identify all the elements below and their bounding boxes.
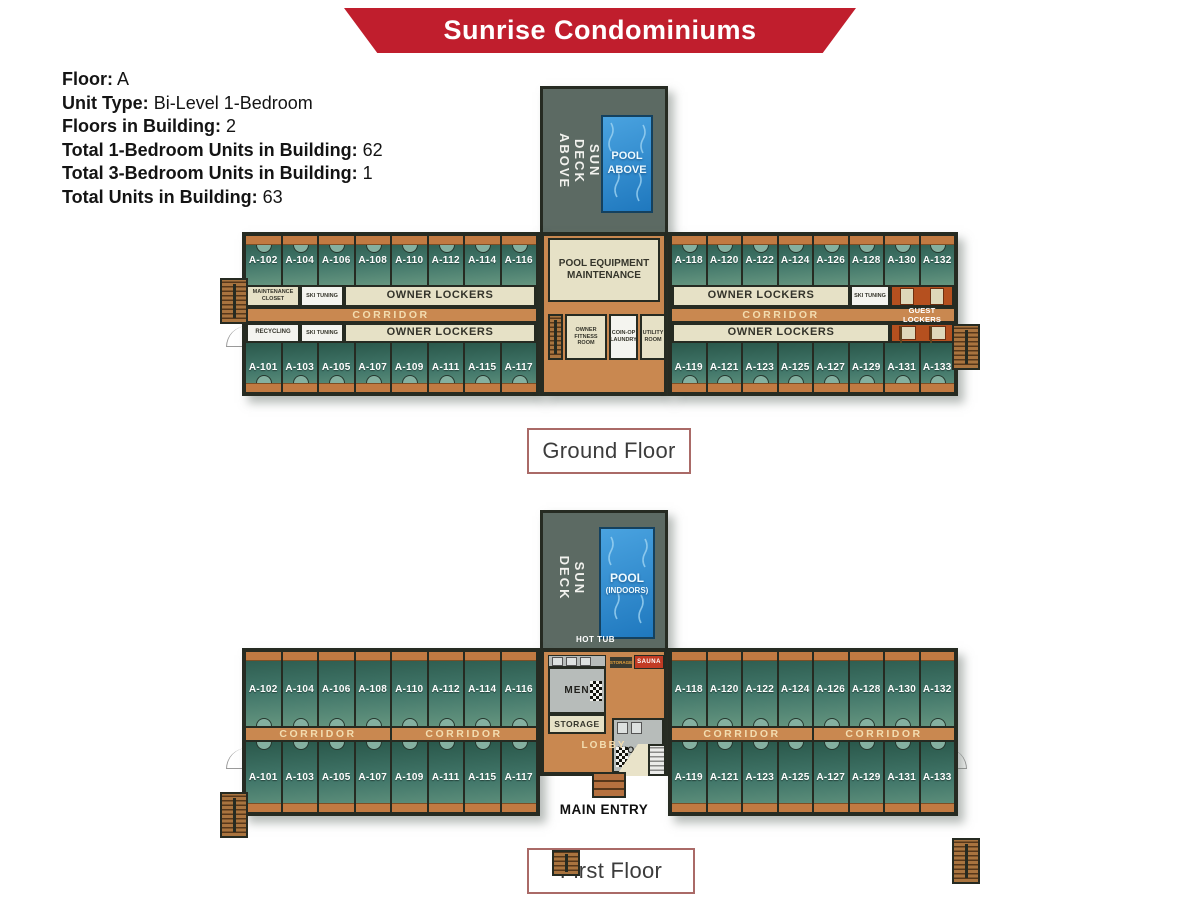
title-banner: Sunrise Condominiums bbox=[344, 8, 856, 53]
unit-label: A-130 bbox=[887, 684, 916, 695]
unit-room: A-129 bbox=[850, 742, 886, 812]
unit-room: A-112 bbox=[429, 236, 466, 285]
unit-label: A-124 bbox=[781, 255, 810, 266]
gf-right-band-bottom: OWNER LOCKERS bbox=[672, 323, 954, 343]
women-fixtures bbox=[617, 722, 642, 734]
room-owner-lockers: OWNER LOCKERS bbox=[344, 323, 536, 343]
men-label: MEN bbox=[564, 685, 589, 696]
unit-label: A-109 bbox=[395, 772, 424, 783]
ff-pool-label: POOL bbox=[610, 571, 644, 586]
main-entry-label: MAIN ENTRY bbox=[540, 802, 668, 817]
unit-room: A-115 bbox=[465, 742, 502, 812]
room-maintenance-closet: MAINTENANCE CLOSET bbox=[246, 285, 300, 307]
unit-room: A-126 bbox=[814, 236, 850, 285]
guest-lockers-top bbox=[890, 285, 954, 307]
unit-room: A-119 bbox=[672, 343, 708, 392]
gf-sun-deck-area: SUN DECK ABOVE POOL ABOVE bbox=[540, 86, 668, 236]
unit-label: A-116 bbox=[505, 684, 533, 695]
gf-pool-label: POOL ABOVE bbox=[607, 150, 646, 178]
unit-label: A-133 bbox=[923, 772, 952, 783]
unit-label: A-106 bbox=[322, 255, 351, 266]
room-coin-op-laundry: COIN-OP LAUNDRY bbox=[609, 314, 638, 360]
room-sauna: SAUNA bbox=[634, 655, 664, 669]
unit-room: A-101 bbox=[246, 742, 283, 812]
info-line-floor: Floor: A bbox=[62, 68, 383, 92]
room-storage-small: STORAGE bbox=[610, 657, 632, 668]
unit-label: A-121 bbox=[710, 772, 739, 783]
unit-label: A-129 bbox=[852, 362, 881, 373]
unit-label: A-107 bbox=[358, 362, 387, 373]
unit-label: A-105 bbox=[322, 772, 351, 783]
unit-room: A-103 bbox=[283, 343, 320, 392]
unit-label: A-103 bbox=[285, 772, 314, 783]
unit-label: A-114 bbox=[468, 684, 496, 695]
unit-label: A-110 bbox=[395, 255, 423, 266]
corridor-label: CORRIDOR bbox=[246, 309, 536, 321]
unit-room: A-115 bbox=[465, 343, 502, 392]
corridor-label: CORRIDOR bbox=[672, 309, 890, 321]
unit-label: A-124 bbox=[781, 684, 810, 695]
unit-label: A-112 bbox=[432, 684, 460, 695]
unit-label: A-128 bbox=[852, 255, 881, 266]
ff-unit-row-right-bottom: A-119A-121A-123A-125A-127A-129A-131A-133 bbox=[672, 742, 954, 812]
gf-stairwell-right bbox=[952, 324, 980, 370]
info-line-floors: Floors in Building: 2 bbox=[62, 115, 383, 139]
guest-lockers-bottom bbox=[890, 323, 954, 343]
unit-room: A-104 bbox=[283, 652, 320, 726]
ff-sun-deck-area: SUN DECK POOL (INDOORS) HOT TUB bbox=[540, 510, 668, 658]
unit-label: A-122 bbox=[745, 684, 774, 695]
unit-room: A-122 bbox=[743, 236, 779, 285]
unit-label: A-126 bbox=[816, 684, 845, 695]
unit-label: A-119 bbox=[675, 362, 703, 373]
unit-room: A-133 bbox=[921, 343, 955, 392]
unit-label: A-102 bbox=[249, 684, 278, 695]
unit-room: A-131 bbox=[885, 343, 921, 392]
corridor-label: CORRIDOR bbox=[390, 728, 536, 740]
unit-room: A-114 bbox=[465, 652, 502, 726]
unit-label: A-106 bbox=[322, 684, 351, 695]
unit-label: A-111 bbox=[432, 362, 460, 373]
unit-room: A-128 bbox=[850, 236, 886, 285]
unit-room: A-116 bbox=[502, 652, 537, 726]
unit-label: A-103 bbox=[285, 362, 314, 373]
unit-room: A-120 bbox=[708, 652, 744, 726]
locker-bank bbox=[900, 288, 914, 305]
ff-unit-row-left-top: A-102A-104A-106A-108A-110A-112A-114A-116 bbox=[246, 652, 536, 726]
unit-room: A-121 bbox=[708, 343, 744, 392]
room-recycling: RECYCLING bbox=[246, 323, 300, 343]
unit-room: A-106 bbox=[319, 236, 356, 285]
unit-label: A-105 bbox=[322, 362, 351, 373]
unit-room: A-111 bbox=[429, 343, 466, 392]
room-owner-lockers: OWNER LOCKERS bbox=[672, 323, 890, 343]
gf-pool: POOL ABOVE bbox=[601, 115, 653, 213]
unit-label: A-108 bbox=[358, 255, 387, 266]
unit-label: A-125 bbox=[781, 362, 810, 373]
unit-label: A-104 bbox=[285, 684, 314, 695]
ff-unit-row-right-top: A-118A-120A-122A-124A-126A-128A-130A-132 bbox=[672, 652, 954, 726]
room-ski-tuning: SKI TUNING bbox=[300, 323, 344, 343]
ff-sun-deck-label: SUN DECK bbox=[557, 540, 587, 617]
unit-room: A-130 bbox=[885, 652, 921, 726]
room-storage: STORAGE bbox=[548, 714, 606, 734]
men-fixtures bbox=[548, 655, 606, 667]
unit-label: A-115 bbox=[468, 772, 496, 783]
ff-unit-row-left-bottom: A-101A-103A-105A-107A-109A-111A-115A-117 bbox=[246, 742, 536, 812]
unit-label: A-128 bbox=[852, 684, 881, 695]
gf-middle-section: POOL EQUIPMENT MAINTENANCE OWNER FITNESS… bbox=[540, 232, 668, 396]
unit-label: A-114 bbox=[468, 255, 496, 266]
unit-label: A-104 bbox=[285, 255, 314, 266]
info-line-1br: Total 1-Bedroom Units in Building: 62 bbox=[62, 139, 383, 163]
unit-room: A-130 bbox=[885, 236, 921, 285]
corridor-label: CORRIDOR bbox=[812, 728, 954, 740]
unit-label: A-119 bbox=[675, 772, 703, 783]
unit-room: A-124 bbox=[779, 236, 815, 285]
unit-label: A-130 bbox=[887, 255, 916, 266]
unit-room: A-117 bbox=[502, 343, 537, 392]
unit-label: A-123 bbox=[745, 362, 774, 373]
unit-room: A-133 bbox=[921, 742, 955, 812]
room-ski-tuning: SKI TUNING bbox=[850, 285, 890, 307]
unit-room: A-120 bbox=[708, 236, 744, 285]
unit-room: A-123 bbox=[743, 742, 779, 812]
ff-pool: POOL (INDOORS) bbox=[599, 527, 655, 639]
unit-label: A-115 bbox=[468, 362, 496, 373]
unit-label: A-110 bbox=[395, 684, 423, 695]
unit-label: A-120 bbox=[710, 255, 739, 266]
unit-label: A-111 bbox=[432, 772, 460, 783]
unit-label: A-129 bbox=[852, 772, 881, 783]
unit-label: A-127 bbox=[816, 772, 845, 783]
unit-room: A-102 bbox=[246, 652, 283, 726]
gf-left-wing: A-102A-104A-106A-108A-110A-112A-114A-116… bbox=[242, 232, 540, 396]
room-utility: UTILITY ROOM bbox=[640, 314, 666, 360]
unit-room: A-109 bbox=[392, 343, 429, 392]
ff-left-corridor: CORRIDOR CORRIDOR bbox=[246, 726, 536, 742]
room-owner-fitness: OWNER FITNESS ROOM bbox=[565, 314, 607, 360]
unit-label: A-132 bbox=[923, 255, 952, 266]
unit-room: A-118 bbox=[672, 652, 708, 726]
unit-room: A-127 bbox=[814, 742, 850, 812]
ff-lobby-stairs-right bbox=[648, 744, 666, 776]
building-info: Floor: A Unit Type: Bi-Level 1-Bedroom F… bbox=[62, 68, 383, 209]
gf-right-wing: A-118A-120A-122A-124A-126A-128A-130A-132… bbox=[668, 232, 958, 396]
ground-floor-caption: Ground Floor bbox=[527, 428, 691, 474]
info-line-total: Total Units in Building: 63 bbox=[62, 186, 383, 210]
gf-left-band-top: MAINTENANCE CLOSET SKI TUNING OWNER LOCK… bbox=[246, 285, 536, 307]
unit-room: A-126 bbox=[814, 652, 850, 726]
unit-room: A-121 bbox=[708, 742, 744, 812]
gf-unit-row-right-bottom: A-119A-121A-123A-125A-127A-129A-131A-133 bbox=[672, 343, 954, 392]
locker-bank bbox=[930, 288, 944, 305]
room-owner-lockers: OWNER LOCKERS bbox=[344, 285, 536, 307]
info-line-unit-type: Unit Type: Bi-Level 1-Bedroom bbox=[62, 92, 383, 116]
unit-room: A-106 bbox=[319, 652, 356, 726]
unit-label: A-131 bbox=[887, 772, 916, 783]
unit-room: A-123 bbox=[743, 343, 779, 392]
unit-label: A-133 bbox=[923, 362, 952, 373]
unit-room: A-102 bbox=[246, 236, 283, 285]
shower-icon bbox=[590, 681, 602, 701]
ff-pool-sublabel: (INDOORS) bbox=[606, 586, 649, 596]
unit-room: A-112 bbox=[429, 652, 466, 726]
unit-room: A-103 bbox=[283, 742, 320, 812]
room-owner-lockers: OWNER LOCKERS bbox=[672, 285, 850, 307]
unit-room: A-109 bbox=[392, 742, 429, 812]
unit-room: A-107 bbox=[356, 742, 393, 812]
unit-label: A-126 bbox=[816, 255, 845, 266]
unit-room: A-108 bbox=[356, 236, 393, 285]
gf-right-corridor: CORRIDOR GUEST LOCKERS bbox=[672, 307, 954, 323]
gf-right-band-top: OWNER LOCKERS SKI TUNING bbox=[672, 285, 954, 307]
unit-label: A-101 bbox=[249, 362, 278, 373]
unit-room: A-125 bbox=[779, 343, 815, 392]
unit-room: A-125 bbox=[779, 742, 815, 812]
main-entry-canopy bbox=[592, 772, 626, 798]
unit-room: A-110 bbox=[392, 236, 429, 285]
unit-room: A-107 bbox=[356, 343, 393, 392]
room-men: MEN bbox=[548, 667, 606, 714]
unit-label: A-123 bbox=[745, 772, 774, 783]
unit-room: A-108 bbox=[356, 652, 393, 726]
unit-room: A-132 bbox=[921, 652, 955, 726]
unit-room: A-117 bbox=[502, 742, 537, 812]
locker-bank bbox=[929, 326, 946, 340]
unit-room: A-101 bbox=[246, 343, 283, 392]
unit-label: A-132 bbox=[923, 684, 952, 695]
ff-right-wing: A-118A-120A-122A-124A-126A-128A-130A-132… bbox=[668, 648, 958, 816]
caption-text: Ground Floor bbox=[542, 438, 675, 464]
ff-stairwell-left bbox=[220, 792, 248, 838]
locker-bank bbox=[899, 326, 916, 340]
ff-left-wing: A-102A-104A-106A-108A-110A-112A-114A-116… bbox=[242, 648, 540, 816]
unit-label: A-101 bbox=[249, 772, 278, 783]
unit-label: A-131 bbox=[887, 362, 916, 373]
guest-lockers-label: GUEST LOCKERS bbox=[891, 306, 953, 324]
gf-stairwell-left bbox=[220, 278, 248, 324]
unit-room: A-132 bbox=[921, 236, 955, 285]
unit-label: A-120 bbox=[710, 684, 739, 695]
unit-label: A-117 bbox=[505, 772, 533, 783]
unit-label: A-117 bbox=[505, 362, 533, 373]
unit-room: A-118 bbox=[672, 236, 708, 285]
unit-label: A-118 bbox=[675, 255, 703, 266]
ff-right-corridor: CORRIDOR CORRIDOR bbox=[672, 726, 954, 742]
unit-label: A-112 bbox=[432, 255, 460, 266]
gf-left-band-bottom: RECYCLING SKI TUNING OWNER LOCKERS bbox=[246, 323, 536, 343]
unit-room: A-110 bbox=[392, 652, 429, 726]
unit-room: A-111 bbox=[429, 742, 466, 812]
room-pool-equipment: POOL EQUIPMENT MAINTENANCE bbox=[548, 238, 660, 302]
unit-room: A-124 bbox=[779, 652, 815, 726]
unit-room: A-105 bbox=[319, 343, 356, 392]
unit-label: A-108 bbox=[358, 684, 387, 695]
unit-room: A-129 bbox=[850, 343, 886, 392]
gf-sun-deck-label: SUN DECK ABOVE bbox=[557, 125, 602, 197]
unit-label: A-107 bbox=[358, 772, 387, 783]
gf-unit-row-left-bottom: A-101A-103A-105A-107A-109A-111A-115A-117 bbox=[246, 343, 536, 392]
unit-room: A-119 bbox=[672, 742, 708, 812]
room-ski-tuning: SKI TUNING bbox=[300, 285, 344, 307]
ff-middle-section: STORAGE SAUNA MEN WOMEN STORAGE LOBBY bbox=[540, 648, 668, 776]
unit-label: A-109 bbox=[395, 362, 424, 373]
unit-room: A-104 bbox=[283, 236, 320, 285]
unit-label: A-122 bbox=[745, 255, 774, 266]
gf-left-corridor: CORRIDOR bbox=[246, 307, 536, 323]
unit-room: A-131 bbox=[885, 742, 921, 812]
corridor-label: CORRIDOR bbox=[246, 728, 390, 740]
gf-unit-row-left-top: A-102A-104A-106A-108A-110A-112A-114A-116 bbox=[246, 236, 536, 285]
unit-label: A-127 bbox=[816, 362, 845, 373]
unit-room: A-114 bbox=[465, 236, 502, 285]
corridor-label: CORRIDOR bbox=[672, 728, 812, 740]
unit-room: A-105 bbox=[319, 742, 356, 812]
unit-room: A-116 bbox=[502, 236, 537, 285]
unit-label: A-102 bbox=[249, 255, 278, 266]
unit-room: A-122 bbox=[743, 652, 779, 726]
unit-label: A-121 bbox=[710, 362, 739, 373]
unit-label: A-118 bbox=[675, 684, 703, 695]
ff-lobby-stairs-left bbox=[552, 850, 580, 876]
unit-room: A-127 bbox=[814, 343, 850, 392]
info-line-3br: Total 3-Bedroom Units in Building: 1 bbox=[62, 162, 383, 186]
gf-middle-stairs bbox=[548, 314, 563, 360]
page-title: Sunrise Condominiums bbox=[443, 15, 756, 46]
unit-label: A-125 bbox=[781, 772, 810, 783]
unit-label: A-116 bbox=[505, 255, 533, 266]
gf-unit-row-right-top: A-118A-120A-122A-124A-126A-128A-130A-132 bbox=[672, 236, 954, 285]
unit-room: A-128 bbox=[850, 652, 886, 726]
ff-stairwell-right bbox=[952, 838, 980, 884]
